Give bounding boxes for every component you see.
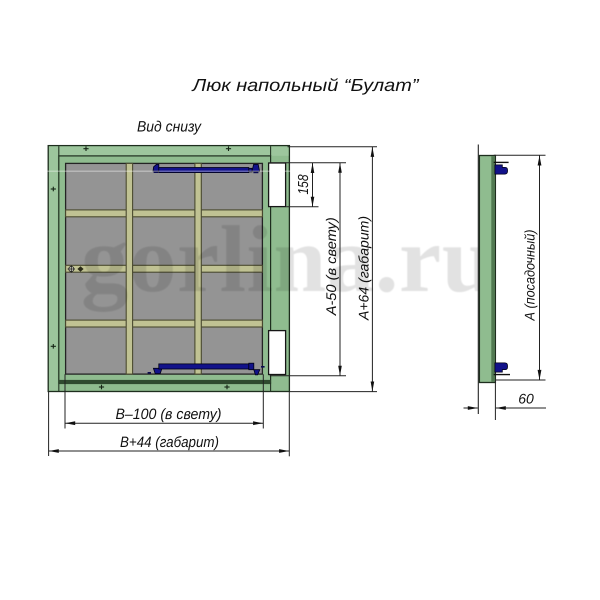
svg-text:В+44 (габарит): В+44 (габарит) [120, 434, 219, 451]
svg-text:А+64 (габарит): А+64 (габарит) [355, 216, 371, 321]
svg-text:158: 158 [296, 175, 312, 195]
svg-text:В–100 (в свету): В–100 (в свету) [116, 406, 222, 423]
svg-text:А (посадочный): А (посадочный) [522, 230, 538, 322]
svg-text:А-50 (в свету): А-50 (в свету) [323, 217, 339, 316]
svg-text:gorlina.ru: gorlina.ru [81, 206, 495, 312]
svg-text:Люк напольный “Булат”: Люк напольный “Булат” [191, 75, 419, 95]
svg-text:60: 60 [518, 391, 534, 407]
svg-text:Вид снизу: Вид снизу [137, 119, 202, 136]
